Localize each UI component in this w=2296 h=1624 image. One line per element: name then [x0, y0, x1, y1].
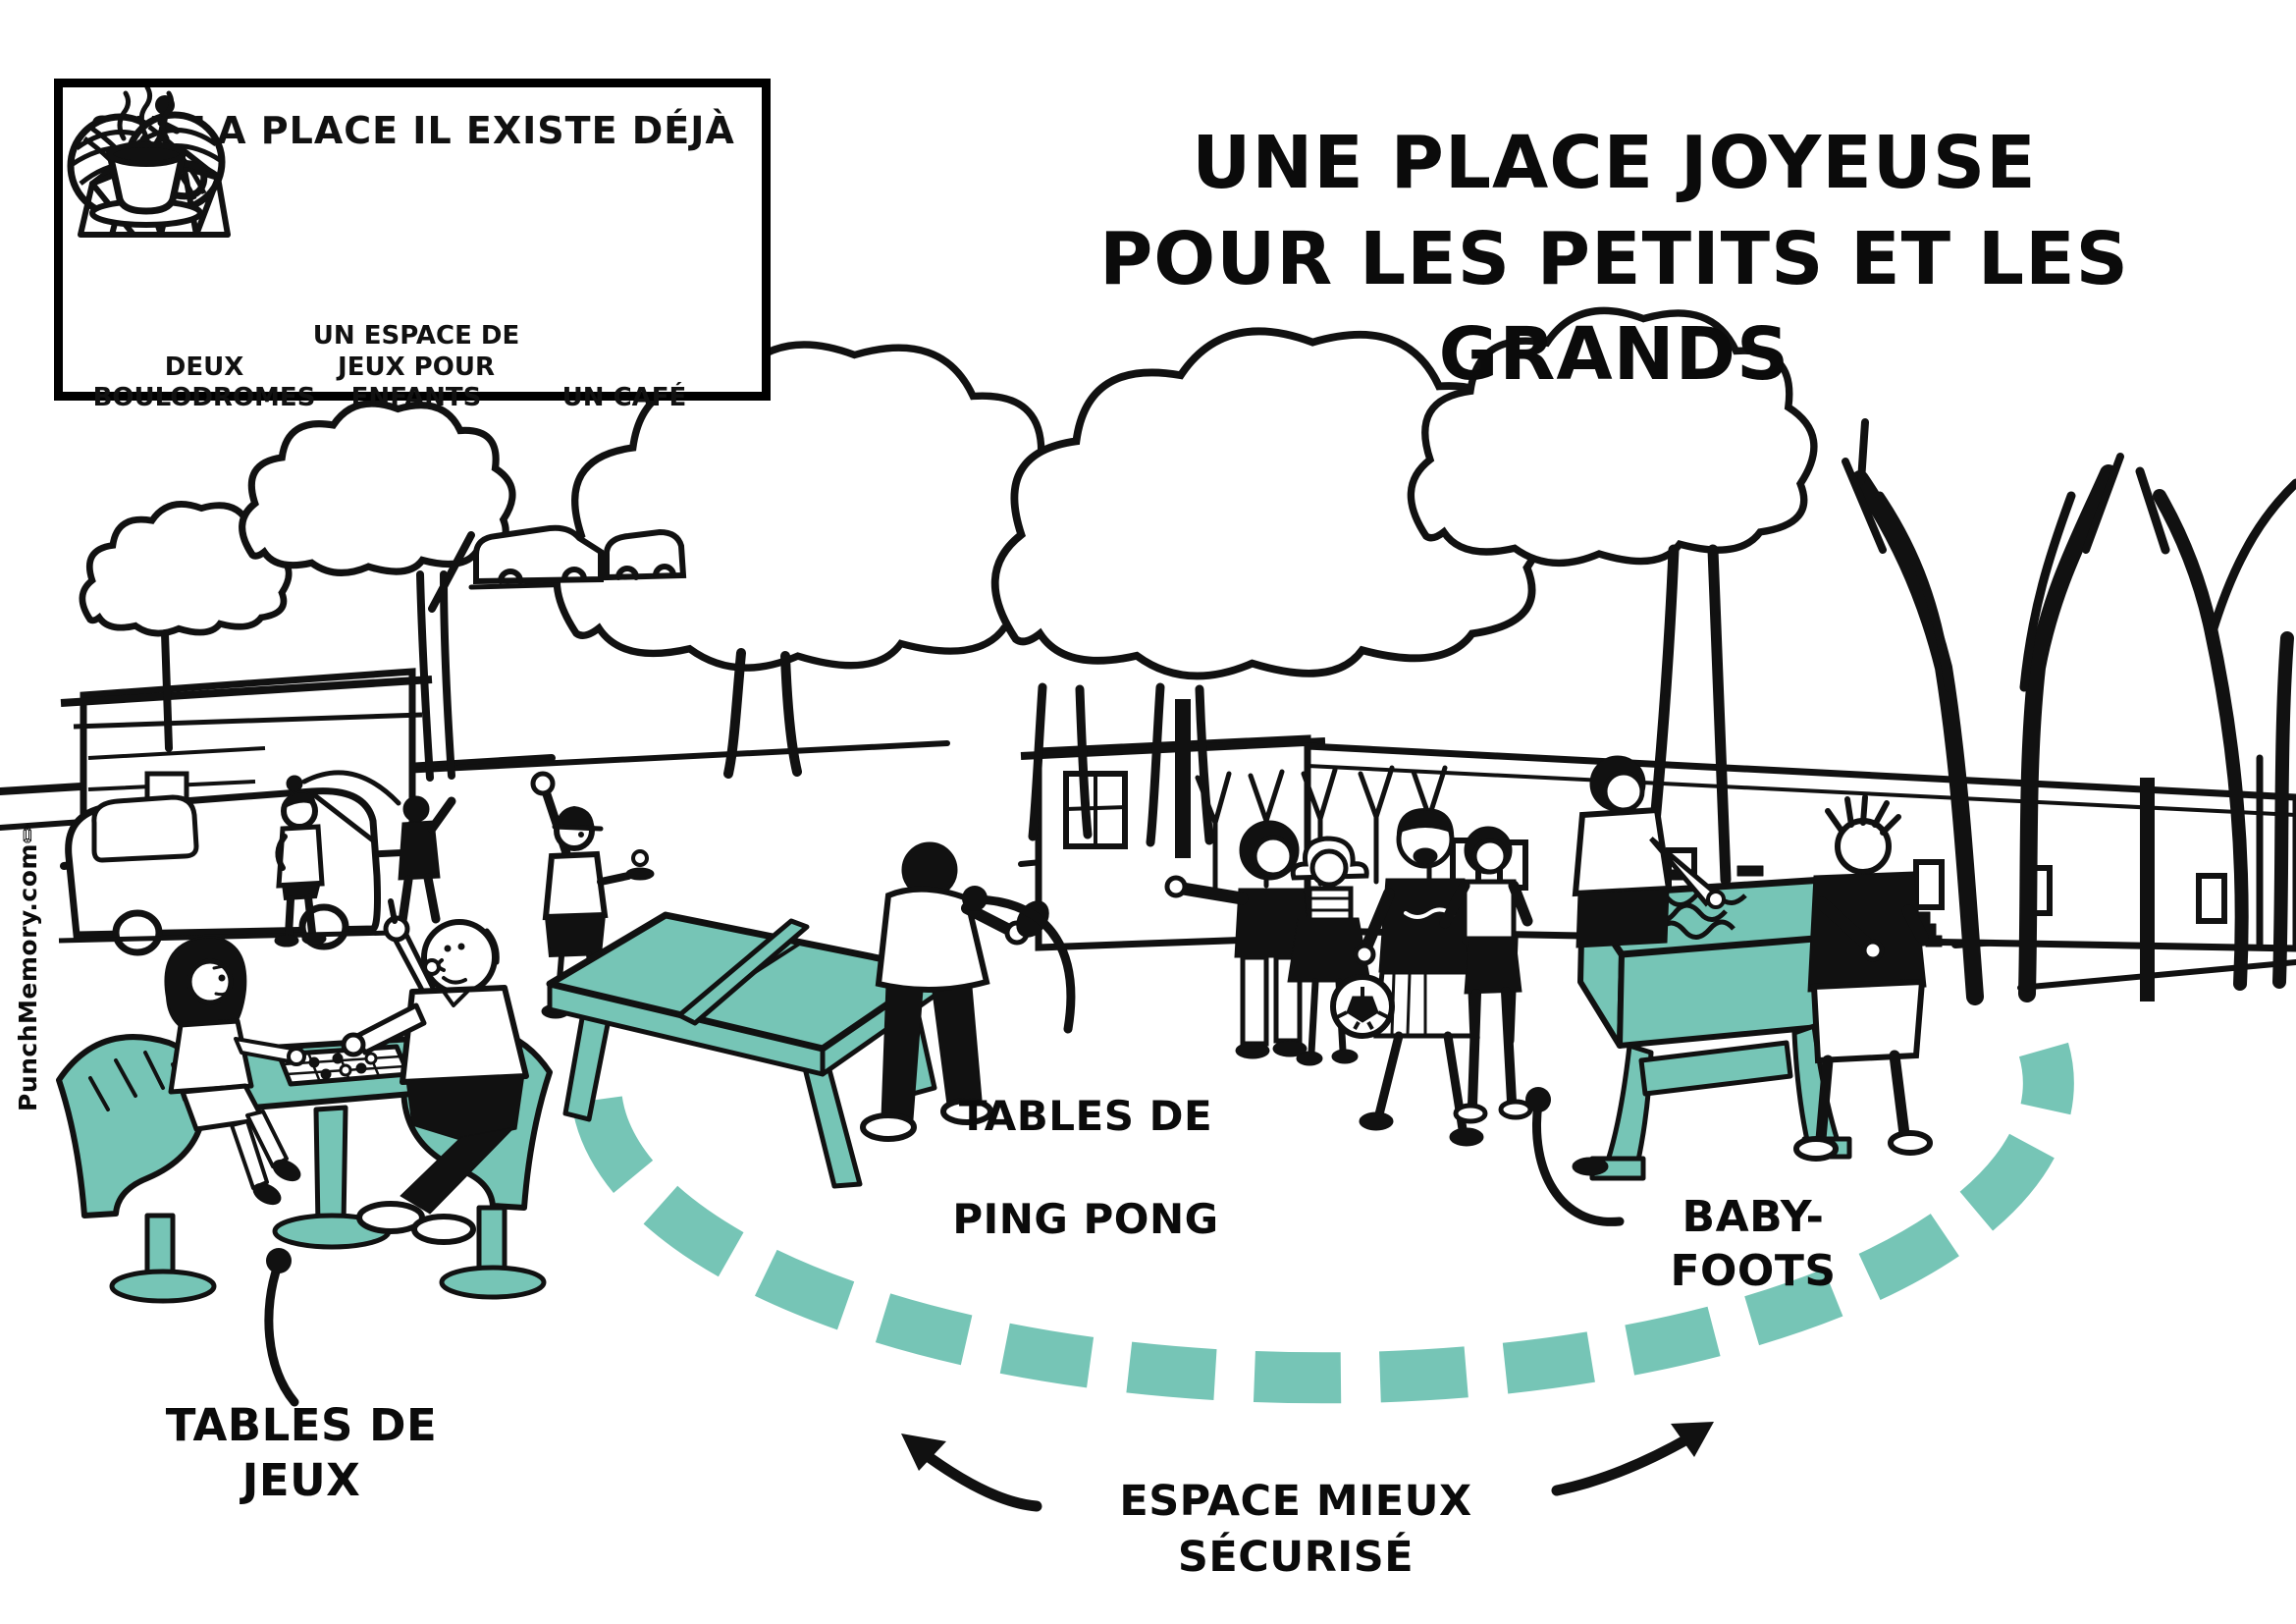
page-title-line2: POUR LES PETITS ET LES GRANDS — [933, 212, 2296, 404]
page-title: UNE PLACE JOYEUSE POUR LES PETITS ET LES… — [933, 116, 2296, 404]
legend-item-label: UN ESPACE DE JEUX POUR ENFANTS — [312, 321, 520, 414]
games-table-scene — [59, 901, 550, 1301]
game-tables-label: TABLES DE JEUX — [130, 1398, 473, 1509]
page-title-line1: UNE PLACE JOYEUSE — [933, 116, 2296, 212]
van — [59, 791, 393, 952]
secured-area-label: ESPACE MIEUX SÉCURISÉ POUR TOUS LES ENFA… — [1001, 1418, 1590, 1624]
baby-foots-label: BABY-FOOTS — [1606, 1190, 1900, 1298]
parked-cars — [476, 528, 683, 581]
illustrated-poster: SUR LA PLACE IL EXISTE DÉJÀ DEUX BOULODR… — [0, 0, 2296, 1624]
watermark-text: PunchMemory.com — [14, 843, 42, 1111]
legend-item-label: UN CAFÉ — [562, 383, 687, 414]
watermark: PunchMemory.com✏ — [14, 823, 42, 1111]
pencil-logo-icon: ✏ — [14, 823, 42, 843]
legend-item-cafe: UN CAFÉ — [520, 220, 728, 414]
legend-item-label: DEUX BOULODROMES — [93, 352, 316, 414]
ping-pong-label: TABLES DE PING PONG — [938, 1039, 1233, 1297]
leader-line-game-tables — [266, 1248, 294, 1402]
existing-facilities-panel: SUR LA PLACE IL EXISTE DÉJÀ DEUX BOULODR… — [54, 79, 771, 401]
football — [1333, 977, 1392, 1036]
legend-item-playground: UN ESPACE DE JEUX POUR ENFANTS — [312, 158, 520, 414]
petanque-thrower-silhouette — [399, 796, 452, 921]
